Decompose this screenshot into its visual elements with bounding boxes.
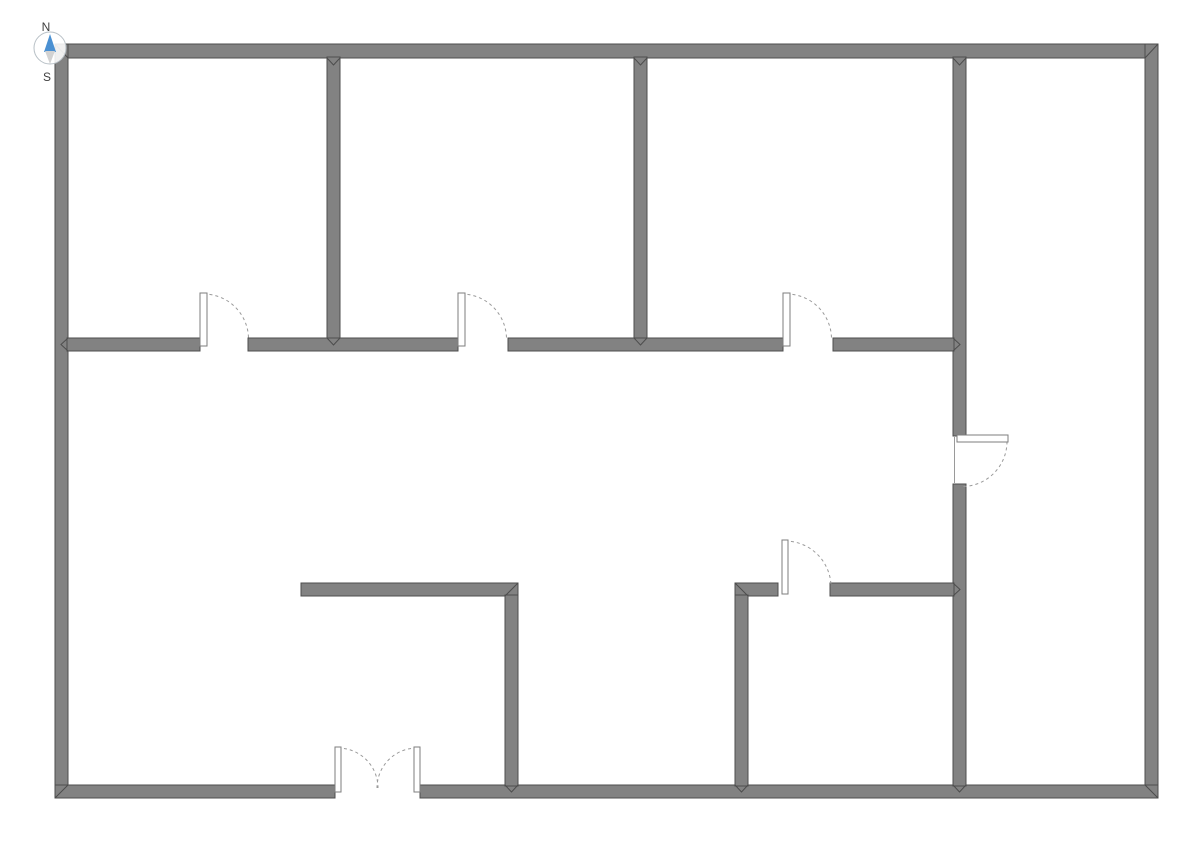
wall-partition-b bbox=[634, 57, 647, 339]
wall-corridor-wall-2 bbox=[248, 338, 458, 351]
wall-sw-room-wall-east bbox=[830, 583, 954, 596]
compass-north-label: N bbox=[42, 20, 51, 34]
double-door-right-leaf bbox=[414, 747, 420, 792]
wall-partition-a bbox=[327, 57, 340, 339]
wall-lower-partition-vert bbox=[505, 595, 518, 786]
wall-sw-room-wall-vert bbox=[735, 595, 748, 786]
wall-partition-c-upper bbox=[953, 57, 966, 436]
wall-outer-left bbox=[55, 44, 68, 798]
double-door-right-swing-arc bbox=[377, 748, 417, 788]
wall-corridor-wall-1 bbox=[67, 338, 200, 351]
wall-outer-top bbox=[55, 44, 1158, 58]
door-room-2-leaf bbox=[458, 293, 465, 346]
door-east-corridor-swing-arc bbox=[962, 442, 1007, 487]
double-door-left-swing-arc bbox=[338, 748, 378, 788]
floor-plan-page: N S bbox=[0, 0, 1191, 842]
door-sw-room-swing-arc bbox=[785, 541, 831, 587]
floor-plan: N S bbox=[0, 0, 1191, 842]
door-room-1-leaf bbox=[200, 293, 207, 346]
door-sw-room-leaf bbox=[782, 540, 788, 594]
door-room-1-swing-arc bbox=[204, 294, 249, 339]
door-room-2-swing-arc bbox=[462, 294, 507, 339]
mitre-layer bbox=[55, 44, 1158, 798]
compass-south-label: S bbox=[43, 70, 51, 84]
doors-layer bbox=[200, 293, 1008, 792]
wall-corridor-wall-4 bbox=[833, 338, 954, 351]
double-door-left-leaf bbox=[335, 747, 341, 792]
wall-outer-bottom-east bbox=[420, 785, 1158, 798]
wall-lower-partition-horiz bbox=[301, 583, 518, 596]
door-room-3-swing-arc bbox=[787, 294, 832, 339]
walls-layer bbox=[55, 44, 1158, 798]
door-room-3-leaf bbox=[783, 293, 790, 346]
wall-outer-right bbox=[1145, 44, 1158, 798]
wall-outer-bottom-west bbox=[55, 785, 335, 798]
door-east-corridor-leaf bbox=[957, 435, 1008, 442]
wall-partition-c-lower bbox=[953, 484, 966, 786]
